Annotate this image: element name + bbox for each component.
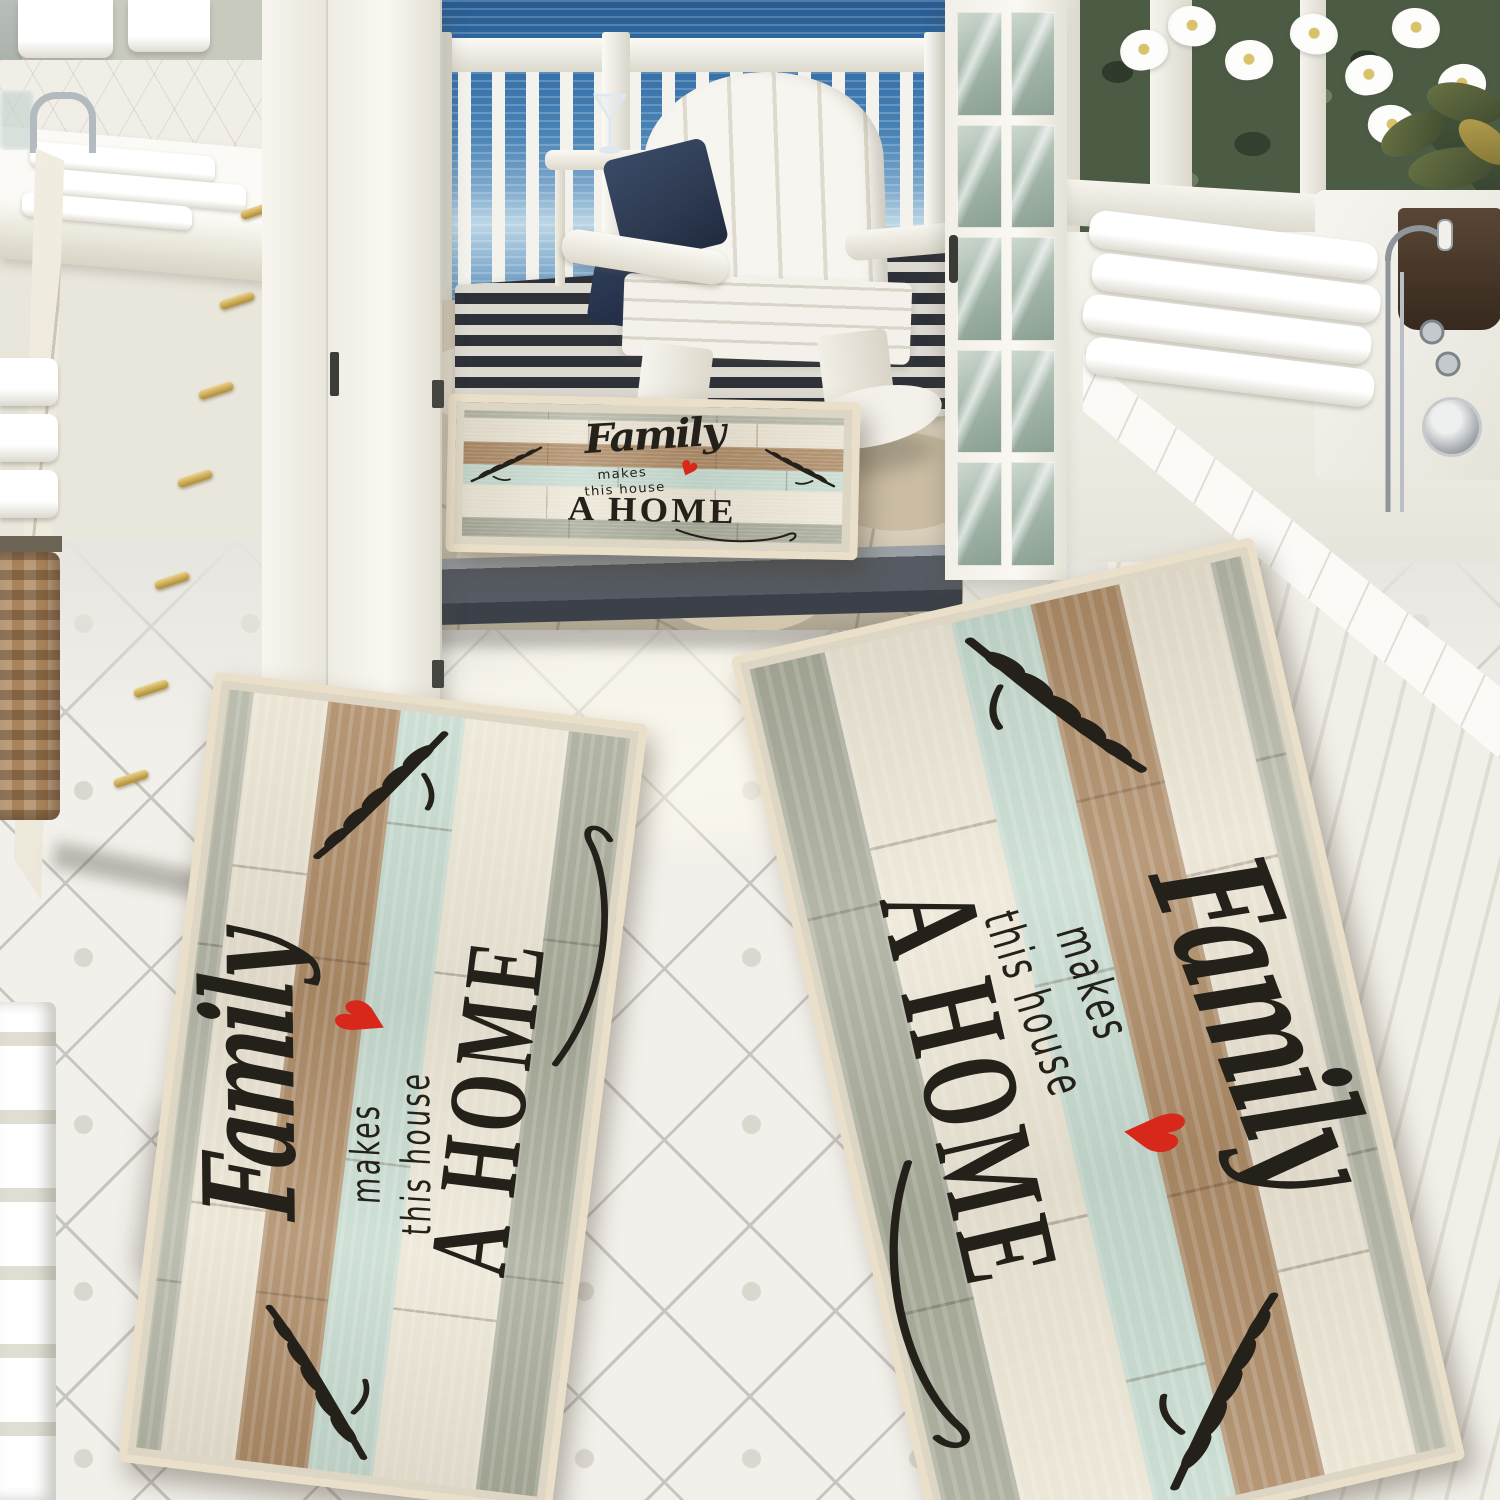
glass-pane bbox=[957, 237, 1002, 341]
adirondack-chair bbox=[575, 60, 960, 455]
folded-towel bbox=[0, 470, 58, 518]
laurel-branch-icon bbox=[762, 444, 839, 494]
gold-drawer-pull bbox=[132, 679, 169, 699]
door-hinge bbox=[432, 660, 444, 688]
stacked-towels-right bbox=[1070, 209, 1379, 418]
rug-art-slot: Family makes this house ♥ A HOME bbox=[454, 402, 853, 552]
folded-towel bbox=[0, 414, 58, 462]
orchid-blossom bbox=[1286, 9, 1341, 58]
table-leg bbox=[555, 166, 565, 286]
glass-door-handle bbox=[949, 235, 958, 283]
glass-soap-jar bbox=[0, 90, 34, 150]
rug-artwork: Family makes this house ♥ A HOME bbox=[462, 410, 844, 544]
orchid-blossom bbox=[1116, 25, 1171, 74]
heart-icon: ♥ bbox=[1102, 1107, 1197, 1157]
rug-word-makes: makes bbox=[597, 465, 648, 482]
doormat-rug: Family makes this house ♥ A HOME bbox=[445, 394, 860, 561]
sink-faucet bbox=[30, 92, 96, 153]
glass-pane bbox=[1011, 12, 1056, 116]
glass-pane bbox=[1011, 237, 1056, 341]
towel-stack-bottom bbox=[0, 1002, 56, 1500]
rug-art-slot: Family makes this house ♥ A HOME bbox=[127, 680, 639, 1500]
shelf-towels bbox=[0, 358, 58, 536]
rug-word-makes: makes bbox=[342, 1102, 389, 1206]
hanging-towel bbox=[128, 0, 210, 52]
shelf-gap bbox=[0, 536, 62, 552]
flourish-swash-icon bbox=[671, 525, 804, 546]
gold-drawer-pull bbox=[218, 291, 255, 311]
chrome-tub-faucet bbox=[1360, 212, 1490, 532]
glass-pane bbox=[957, 462, 1002, 566]
laurel-branch-icon bbox=[468, 440, 545, 490]
glass-pane bbox=[1011, 350, 1056, 454]
gold-drawer-pull bbox=[112, 769, 149, 789]
orchid-blossom bbox=[1223, 38, 1275, 83]
glass-pane bbox=[957, 12, 1002, 116]
orchid-blossom bbox=[1390, 6, 1442, 51]
glass-pane bbox=[1011, 125, 1056, 229]
door-hinge bbox=[432, 380, 444, 408]
glass-pane bbox=[957, 125, 1002, 229]
glass-door-panel bbox=[945, 0, 1067, 580]
laurel-branch-icon bbox=[233, 1297, 404, 1467]
wicker-basket bbox=[0, 552, 60, 820]
laurel-branch-icon bbox=[297, 710, 468, 880]
bathroom-product-photo: Family makes this house ♥ A HOME bbox=[0, 0, 1500, 1500]
gold-drawer-pull bbox=[197, 381, 234, 401]
gold-drawer-pull bbox=[176, 469, 213, 489]
gold-drawer-pull bbox=[153, 571, 190, 591]
glass-panes bbox=[957, 12, 1055, 566]
orchid-blossom bbox=[1165, 3, 1218, 49]
rug-word-family: Family bbox=[583, 407, 725, 462]
rug-artwork: Family makes this house ♥ A HOME bbox=[136, 689, 630, 1496]
hanging-towel bbox=[18, 0, 113, 58]
potted-plant bbox=[1378, 56, 1500, 221]
rug-word-family: Family bbox=[173, 931, 325, 1222]
glass-pane bbox=[957, 350, 1002, 454]
glass-pane bbox=[1011, 462, 1056, 566]
folded-towel bbox=[0, 358, 58, 406]
